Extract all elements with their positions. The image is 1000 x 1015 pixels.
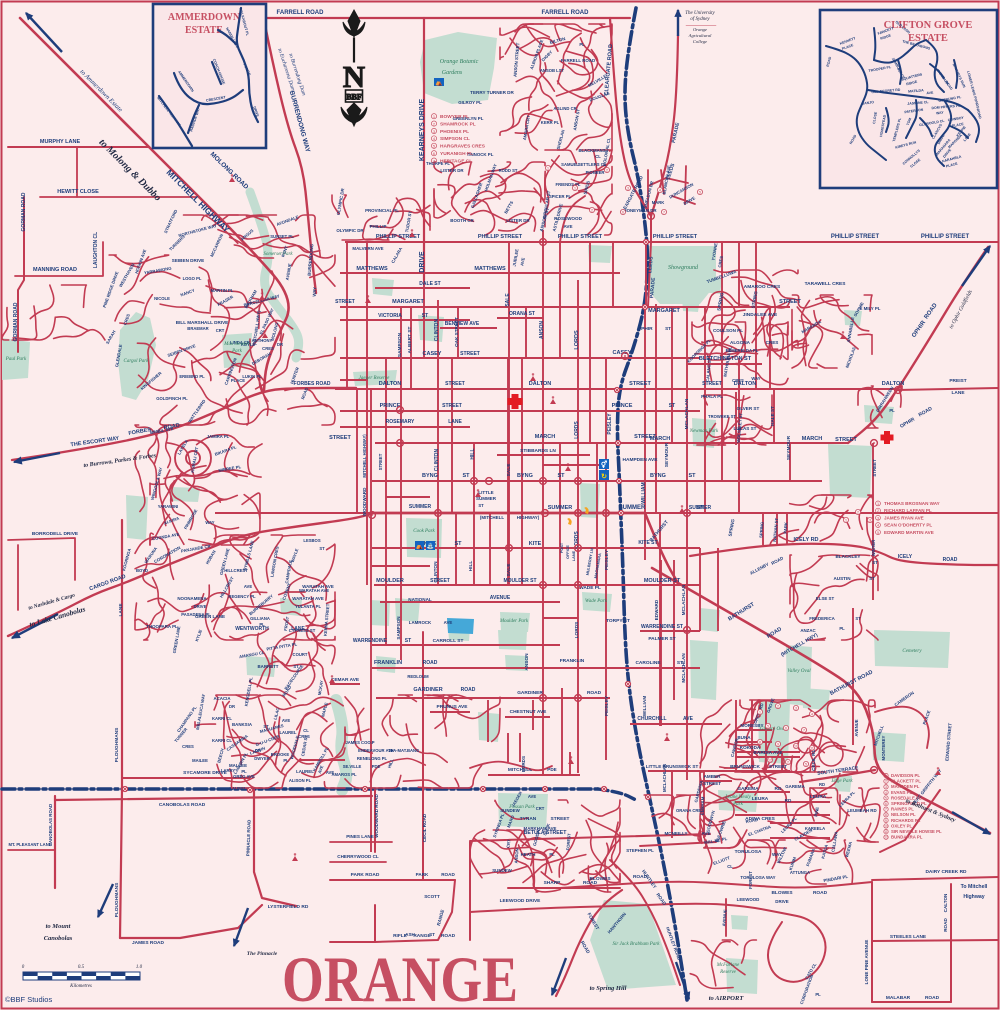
svg-text:YULANTA PL: YULANTA PL xyxy=(295,604,321,609)
svg-text:↻: ↻ xyxy=(601,474,607,481)
svg-text:FARRELL ROAD: FARRELL ROAD xyxy=(561,58,595,63)
svg-text:STREET: STREET xyxy=(378,453,383,470)
svg-text:SHAMROCK PL: SHAMROCK PL xyxy=(440,121,476,127)
svg-text:6: 6 xyxy=(785,727,787,731)
svg-text:NELSON PL: NELSON PL xyxy=(891,812,916,817)
svg-text:MOULDER ST: MOULDER ST xyxy=(644,578,681,584)
svg-text:LISTER DR: LISTER DR xyxy=(506,218,530,223)
svg-text:PLOUGHMANS: PLOUGHMANS xyxy=(114,882,120,917)
svg-text:Park: Park xyxy=(231,349,243,354)
svg-text:RD: RD xyxy=(785,798,792,803)
svg-text:WARATAH AVE: WARATAH AVE xyxy=(292,596,324,601)
svg-text:HERITAGE CL: HERITAGE CL xyxy=(440,158,472,164)
svg-text:JAMES RYAN AVE: JAMES RYAN AVE xyxy=(884,515,924,520)
svg-text:CRES: CRES xyxy=(182,744,194,749)
svg-text:LAUREL: LAUREL xyxy=(280,730,297,735)
svg-text:1.0: 1.0 xyxy=(136,965,143,970)
svg-text:Paul Park: Paul Park xyxy=(5,357,27,362)
svg-text:BROOKE: BROOKE xyxy=(271,752,290,757)
svg-text:FARRELL ROAD: FARRELL ROAD xyxy=(542,10,590,16)
svg-text:SUMMER: SUMMER xyxy=(689,505,712,511)
svg-text:TORULOSA: TORULOSA xyxy=(735,849,762,855)
svg-text:ROSEMARY: ROSEMARY xyxy=(386,419,415,425)
svg-text:1: 1 xyxy=(759,711,761,715)
svg-text:DALTON: DALTON xyxy=(529,381,551,387)
svg-text:Valley Oval: Valley Oval xyxy=(787,669,811,674)
svg-text:LEURA: LEURA xyxy=(752,796,769,802)
svg-text:Kilometres: Kilometres xyxy=(69,984,92,989)
svg-text:STEPHEN PL: STEPHEN PL xyxy=(626,848,654,853)
svg-text:Leane Healy: Leane Healy xyxy=(724,795,751,800)
svg-text:REGENCY PL: REGENCY PL xyxy=(228,594,256,599)
svg-text:DALTON: DALTON xyxy=(882,381,904,387)
svg-text:ROAD: ROAD xyxy=(441,872,455,877)
svg-text:LANE: LANE xyxy=(118,603,124,617)
svg-text:BLOWES: BLOWES xyxy=(771,890,793,896)
svg-text:ICELY: ICELY xyxy=(898,554,913,560)
svg-text:LANE: LANE xyxy=(572,550,576,561)
svg-text:BLACKMANS: BLACKMANS xyxy=(579,148,606,153)
svg-text:CHURCHILL: CHURCHILL xyxy=(637,716,666,722)
svg-text:SAMUEL: SAMUEL xyxy=(561,162,579,167)
svg-text:Reserve: Reserve xyxy=(719,970,737,975)
svg-text:PINES LANE: PINES LANE xyxy=(346,834,374,839)
svg-text:OFFICE: OFFICE xyxy=(566,545,570,559)
svg-text:SHARP: SHARP xyxy=(544,880,562,886)
svg-text:AMAROO CRES: AMAROO CRES xyxy=(744,284,781,290)
svg-text:ANZAC: ANZAC xyxy=(800,628,816,633)
svg-text:BRUNSWICK: BRUNSWICK xyxy=(730,764,760,770)
svg-text:12: 12 xyxy=(884,836,888,840)
svg-text:CL: CL xyxy=(727,864,733,869)
svg-text:PEISLEY: PEISLEY xyxy=(604,549,610,570)
svg-text:STEELES LANE: STEELES LANE xyxy=(890,934,927,940)
svg-text:LAMROCK: LAMROCK xyxy=(409,620,432,625)
svg-text:COURT: COURT xyxy=(293,652,308,657)
svg-text:6: 6 xyxy=(622,211,624,215)
svg-text:CALTON: CALTON xyxy=(943,893,948,912)
svg-text:4: 4 xyxy=(877,524,879,528)
svg-text:KITE ST: KITE ST xyxy=(638,540,657,546)
svg-text:RD: RD xyxy=(775,786,782,792)
svg-text:MARCH: MARCH xyxy=(650,436,670,442)
svg-text:3: 3 xyxy=(795,707,797,711)
svg-text:CL: CL xyxy=(595,154,601,159)
svg-text:SEYMOUR: SEYMOUR xyxy=(786,435,792,460)
svg-text:JAMIRA PL: JAMIRA PL xyxy=(207,434,230,439)
svg-text:KARRI CL: KARRI CL xyxy=(212,716,232,721)
svg-text:LEEWOOD DRIVE: LEEWOOD DRIVE xyxy=(500,898,542,904)
svg-text:WARRENDINE ST: WARRENDINE ST xyxy=(641,624,683,630)
svg-text:To Mitchell: To Mitchell xyxy=(961,884,988,890)
svg-text:PDE: PDE xyxy=(372,764,381,769)
svg-text:2: 2 xyxy=(787,761,789,765)
svg-text:THOMAS BROSNAN WAY: THOMAS BROSNAN WAY xyxy=(884,501,940,506)
svg-text:PALMER ST: PALMER ST xyxy=(648,636,675,642)
svg-text:WADE PL: WADE PL xyxy=(579,585,601,591)
svg-text:BRAEMAR: BRAEMAR xyxy=(187,326,208,331)
svg-text:NATIONAL: NATIONAL xyxy=(408,597,432,602)
svg-text:BANKSIA: BANKSIA xyxy=(232,722,253,727)
svg-text:PARK: PARK xyxy=(783,522,789,534)
svg-text:ROAD: ROAD xyxy=(587,690,602,696)
svg-text:12: 12 xyxy=(768,759,772,763)
svg-text:7: 7 xyxy=(803,729,805,733)
svg-text:GARDINER: GARDINER xyxy=(413,687,442,693)
svg-text:PL: PL xyxy=(889,408,895,413)
svg-text:GREG AVE: GREG AVE xyxy=(233,774,255,779)
svg-text:5: 5 xyxy=(767,725,769,729)
svg-text:CLINTON: CLINTON xyxy=(434,319,440,342)
svg-text:REDLOUM: REDLOUM xyxy=(407,674,429,679)
svg-text:DRIVE: DRIVE xyxy=(419,251,426,273)
svg-text:AMAROS PL: AMAROS PL xyxy=(331,772,357,777)
svg-text:CECIL ROAD: CECIL ROAD xyxy=(422,813,427,842)
svg-text:PIONEER: PIONEER xyxy=(586,170,605,175)
svg-text:MARCH: MARCH xyxy=(535,434,555,440)
svg-text:Highway: Highway xyxy=(963,894,984,900)
svg-text:PHILLIP STREET: PHILLIP STREET xyxy=(921,234,970,240)
svg-text:TYNAN: TYNAN xyxy=(520,816,537,822)
svg-text:MT. PLEASANT LANE: MT. PLEASANT LANE xyxy=(8,842,51,847)
svg-text:Gardens: Gardens xyxy=(442,70,463,76)
svg-text:WILLIAM: WILLIAM xyxy=(642,696,648,717)
svg-text:BOWYER PL: BOWYER PL xyxy=(440,114,469,120)
svg-text:ASH: ASH xyxy=(405,932,415,937)
svg-text:Agricultural: Agricultural xyxy=(688,33,712,38)
svg-text:11: 11 xyxy=(810,747,814,751)
svg-text:2: 2 xyxy=(877,509,879,513)
svg-text:BOOTH CR: BOOTH CR xyxy=(450,218,474,223)
svg-text:CRES: CRES xyxy=(298,734,310,739)
svg-text:LORDS: LORDS xyxy=(521,756,526,772)
svg-text:DAVIDSON PL: DAVIDSON PL xyxy=(891,773,920,778)
svg-text:COULSON PL: COULSON PL xyxy=(713,328,743,333)
svg-text:OXLEY PL: OXLEY PL xyxy=(891,823,913,828)
svg-text:LORDS: LORDS xyxy=(574,621,580,639)
svg-text:MARSDEN PL: MARSDEN PL xyxy=(891,784,920,789)
svg-text:BYNG: BYNG xyxy=(422,473,438,479)
svg-text:1: 1 xyxy=(845,519,847,523)
svg-text:MURPHY LANE: MURPHY LANE xyxy=(40,139,81,145)
svg-text:WOODWARD ROAD: WOODWARD ROAD xyxy=(374,794,379,838)
svg-text:FREDERICA: FREDERICA xyxy=(809,616,835,621)
svg-text:The University: The University xyxy=(685,11,715,16)
svg-text:to Mount: to Mount xyxy=(46,923,71,930)
svg-text:PL: PL xyxy=(259,622,265,627)
svg-text:ST: ST xyxy=(454,541,462,547)
svg-text:SUMMER: SUMMER xyxy=(548,505,572,511)
svg-text:GILLIANA: GILLIANA xyxy=(250,616,270,621)
svg-text:DWYER: DWYER xyxy=(254,756,270,761)
svg-text:POST: POST xyxy=(560,542,564,553)
svg-text:RAINES PL: RAINES PL xyxy=(891,807,914,812)
svg-text:MOULDER: MOULDER xyxy=(376,578,404,584)
svg-text:9: 9 xyxy=(777,743,779,747)
svg-text:CARROLL ST: CARROLL ST xyxy=(433,638,464,644)
svg-text:Edge Park: Edge Park xyxy=(830,779,853,784)
svg-text:CRT: CRT xyxy=(216,328,225,333)
svg-text:Cargol Park: Cargol Park xyxy=(124,359,150,364)
svg-text:WAY: WAY xyxy=(751,376,760,381)
svg-text:3: 3 xyxy=(627,187,629,191)
svg-text:AGLIND CR: AGLIND CR xyxy=(553,106,576,111)
svg-text:5: 5 xyxy=(699,191,701,195)
svg-text:ANSON: ANSON xyxy=(539,321,545,339)
svg-text:MALABAR: MALABAR xyxy=(886,995,911,1001)
svg-text:AVE: AVE xyxy=(244,584,253,589)
svg-text:PEISLEY: PEISLEY xyxy=(604,695,610,716)
svg-text:GARDINER: GARDINER xyxy=(517,690,543,696)
svg-text:GORMAN ROAD: GORMAN ROAD xyxy=(21,192,27,231)
svg-text:SPICER PL: SPICER PL xyxy=(549,194,572,199)
svg-text:YURANIGH PL: YURANIGH PL xyxy=(440,151,473,157)
svg-text:LYSTERFIELD RD: LYSTERFIELD RD xyxy=(268,904,309,910)
svg-text:MOULDER ST: MOULDER ST xyxy=(503,578,536,584)
svg-text:4: 4 xyxy=(659,189,661,193)
svg-text:ST: ST xyxy=(478,503,484,508)
svg-text:STREET: STREET xyxy=(335,299,355,305)
svg-text:ROAD: ROAD xyxy=(461,687,476,693)
svg-text:JINDALEE AVE: JINDALEE AVE xyxy=(743,312,778,318)
svg-text:ALBERT ST: ALBERT ST xyxy=(407,326,413,353)
svg-text:PHILLIP STREET: PHILLIP STREET xyxy=(831,234,880,240)
svg-text:WAY: WAY xyxy=(312,287,318,297)
svg-text:ATTUNGA: ATTUNGA xyxy=(790,870,810,875)
svg-text:HALE ST: HALE ST xyxy=(770,406,775,426)
svg-text:AMMERDOWN: AMMERDOWN xyxy=(168,12,241,23)
svg-text:RD: RD xyxy=(819,782,825,787)
svg-text:STREET: STREET xyxy=(551,816,570,822)
svg-text:ORANA CRES: ORANA CRES xyxy=(676,808,704,813)
svg-text:DRIVE: DRIVE xyxy=(194,604,207,609)
svg-text:WILLIAM: WILLIAM xyxy=(641,482,647,503)
svg-text:MCLACHLAN: MCLACHLAN xyxy=(662,764,667,792)
svg-text:MCLACHLAN: MCLACHLAN xyxy=(684,398,690,429)
svg-text:TARAWELL CRES: TARAWELL CRES xyxy=(805,281,847,287)
svg-text:N: N xyxy=(343,59,365,94)
svg-text:CLINTON: CLINTON xyxy=(434,449,440,472)
svg-text:TORPY ST: TORPY ST xyxy=(606,618,630,624)
svg-text:7: 7 xyxy=(663,211,665,215)
svg-text:MATTHEWS: MATTHEWS xyxy=(356,266,388,272)
svg-text:⛺: ⛺ xyxy=(416,544,424,550)
svg-text:SIR NEVILLE HOWSE PL: SIR NEVILLE HOWSE PL xyxy=(891,829,942,834)
svg-text:CHERRYWOOD CL: CHERRYWOOD CL xyxy=(337,854,379,859)
svg-text:Orange Botanic: Orange Botanic xyxy=(440,59,479,65)
svg-text:Canobolas: Canobolas xyxy=(44,935,73,942)
svg-text:ACACIA: ACACIA xyxy=(213,696,231,701)
svg-text:FARRELL ROAD: FARRELL ROAD xyxy=(277,10,325,16)
svg-text:to AIRPORT: to AIRPORT xyxy=(709,995,745,1002)
svg-text:FORBES ROAD: FORBES ROAD xyxy=(294,381,331,387)
svg-text:Jaeger Reserve: Jaeger Reserve xyxy=(359,376,390,381)
svg-text:STIBBARDS LN: STIBBARDS LN xyxy=(520,448,556,454)
svg-text:BYNG: BYNG xyxy=(517,473,533,479)
svg-text:SCOTT: SCOTT xyxy=(424,894,440,899)
svg-text:MARTIN PL: MARTIN PL xyxy=(211,288,234,293)
svg-text:BUNA: BUNA xyxy=(737,735,751,740)
svg-text:The Pinnacle: The Pinnacle xyxy=(247,951,278,957)
svg-text:CHESTNUT AVE: CHESTNUT AVE xyxy=(510,709,548,715)
svg-text:WAY: WAY xyxy=(205,520,214,525)
svg-text:PL: PL xyxy=(549,852,555,857)
svg-text:PL: PL xyxy=(839,626,845,631)
svg-text:10: 10 xyxy=(794,745,798,749)
svg-text:RENELONG PL: RENELONG PL xyxy=(357,756,388,761)
svg-text:OAK STREET: OAK STREET xyxy=(454,317,459,347)
svg-text:DALE ST: DALE ST xyxy=(419,281,440,287)
svg-text:N-A-MAT.BANG: N-A-MAT.BANG xyxy=(389,748,420,753)
svg-text:8: 8 xyxy=(759,741,761,745)
svg-text:EDWARD MARTIN AVE: EDWARD MARTIN AVE xyxy=(884,530,934,535)
svg-text:PL: PL xyxy=(815,992,821,997)
svg-text:ROAD: ROAD xyxy=(441,933,456,939)
svg-text:EVANS PL: EVANS PL xyxy=(891,790,913,795)
svg-text:WOODWARD: WOODWARD xyxy=(362,487,367,517)
svg-text:3: 3 xyxy=(869,519,871,523)
svg-text:⛲: ⛲ xyxy=(427,542,434,550)
svg-text:MARGARET: MARGARET xyxy=(648,308,680,314)
svg-text:STREET: STREET xyxy=(835,437,857,443)
svg-text:KEARNEYS DRIVE: KEARNEYS DRIVE xyxy=(419,99,426,162)
svg-text:10: 10 xyxy=(884,824,888,828)
svg-text:HEWITT CLOSE: HEWITT CLOSE xyxy=(57,189,99,195)
svg-text:AVE: AVE xyxy=(683,716,694,722)
svg-text:MCLACHLAN: MCLACHLAN xyxy=(681,653,686,683)
svg-text:CL: CL xyxy=(303,728,309,733)
svg-text:PHALA PL: PHALA PL xyxy=(701,394,723,399)
svg-text:JAMES ROAD: JAMES ROAD xyxy=(132,940,165,946)
svg-text:2: 2 xyxy=(591,209,593,213)
svg-text:DR: DR xyxy=(229,704,235,709)
svg-text:BBF: BBF xyxy=(346,93,362,102)
svg-text:CAROLINE: CAROLINE xyxy=(635,660,661,666)
svg-text:NICOLE: NICOLE xyxy=(154,296,170,301)
svg-text:LUKIN PL: LUKIN PL xyxy=(242,374,262,379)
svg-text:OLVER ST: OLVER ST xyxy=(737,406,760,411)
svg-text:ERIEBND PL: ERIEBND PL xyxy=(179,374,205,379)
svg-text:TERRY TURNER DR: TERRY TURNER DR xyxy=(470,90,514,95)
svg-text:MANNING ROAD: MANNING ROAD xyxy=(33,267,77,273)
svg-text:STREET: STREET xyxy=(445,381,465,387)
svg-text:McFarlane: McFarlane xyxy=(716,963,740,968)
svg-text:MCNEILLY: MCNEILLY xyxy=(664,831,687,836)
svg-text:SIMPSON CL: SIMPSON CL xyxy=(440,136,470,142)
svg-text:CRES: CRES xyxy=(732,378,744,383)
svg-text:ST: ST xyxy=(429,932,435,937)
svg-text:LISTER DR: LISTER DR xyxy=(440,168,464,173)
svg-text:LONE PINE AVENUE: LONE PINE AVENUE xyxy=(864,940,869,985)
svg-text:Fossan Park: Fossan Park xyxy=(508,805,535,810)
svg-text:ROAD: ROAD xyxy=(583,880,598,886)
svg-text:ALISON PL: ALISON PL xyxy=(289,778,312,783)
svg-text:MITCHELL HIGHWAY): MITCHELL HIGHWAY) xyxy=(362,434,367,478)
svg-text:1: 1 xyxy=(574,187,576,191)
svg-text:LORDS: LORDS xyxy=(574,421,580,439)
svg-text:LANE: LANE xyxy=(448,419,462,425)
svg-text:YARAWINI: YARAWINI xyxy=(158,504,179,509)
svg-text:MCLACHLAN: MCLACHLAN xyxy=(681,584,687,615)
svg-text:PL: PL xyxy=(579,42,585,47)
svg-text:KITE: KITE xyxy=(529,541,542,547)
svg-text:ORANGE: ORANGE xyxy=(282,944,518,1010)
svg-text:STREET: STREET xyxy=(329,435,351,441)
svg-text:Cook Park: Cook Park xyxy=(413,529,435,534)
svg-text:LEUMEAH RD: LEUMEAH RD xyxy=(847,808,876,813)
svg-text:2: 2 xyxy=(777,705,779,709)
svg-text:4: 4 xyxy=(885,791,887,795)
svg-text:ST: ST xyxy=(462,473,470,479)
svg-text:DALTON: DALTON xyxy=(379,381,401,387)
svg-text:©BBF Studios: ©BBF Studios xyxy=(5,995,52,1004)
svg-text:ST: ST xyxy=(669,403,675,409)
svg-text:Orange: Orange xyxy=(693,27,707,32)
svg-text:PHILLIP STREET: PHILLIP STREET xyxy=(478,234,523,240)
svg-text:SEAN O'DOHERTY PL: SEAN O'DOHERTY PL xyxy=(884,523,932,528)
svg-text:DAIRY CREEK RD: DAIRY CREEK RD xyxy=(925,869,967,875)
svg-text:KOKODA: KOKODA xyxy=(740,745,761,750)
svg-text:SAMPSON: SAMPSON xyxy=(396,616,401,640)
svg-text:DRIVE: DRIVE xyxy=(775,899,788,904)
svg-text:AVE: AVE xyxy=(528,794,537,799)
svg-text:MARGARET: MARGARET xyxy=(392,299,424,305)
svg-text:9: 9 xyxy=(885,819,887,823)
svg-text:LESBOS: LESBOS xyxy=(303,538,320,543)
svg-text:AVENUE: AVENUE xyxy=(854,719,859,736)
svg-text:ST: ST xyxy=(557,473,565,479)
svg-text:LITTLE BRUNSWICK ST: LITTLE BRUNSWICK ST xyxy=(646,764,699,769)
svg-text:PROVINCIAL PL: PROVINCIAL PL xyxy=(365,208,399,213)
svg-text:4: 4 xyxy=(811,713,813,717)
svg-text:STREET: STREET xyxy=(872,459,877,477)
svg-text:ANSON: ANSON xyxy=(524,653,530,671)
svg-text:CANOBOLAS ROAD: CANOBOLAS ROAD xyxy=(159,802,206,808)
svg-text:2: 2 xyxy=(885,780,887,784)
svg-text:1: 1 xyxy=(885,774,887,778)
svg-text:WARATAH AVE: WARATAH AVE xyxy=(299,588,329,593)
svg-text:PREIST: PREIST xyxy=(949,378,966,384)
svg-text:NOONAMENA: NOONAMENA xyxy=(177,596,207,601)
svg-text:OPHIR: OPHIR xyxy=(637,326,653,332)
svg-text:Max Stewart: Max Stewart xyxy=(223,342,250,347)
svg-text:MALVERN AVE: MALVERN AVE xyxy=(352,246,383,251)
svg-text:AUSTIN: AUSTIN xyxy=(833,576,851,581)
svg-text:CYPRESS ST: CYPRESS ST xyxy=(289,628,316,633)
svg-text:LEEWOOD: LEEWOOD xyxy=(737,897,760,902)
svg-text:BLACKLEY: BLACKLEY xyxy=(835,554,860,559)
svg-text:GOLDFINCH PL: GOLDFINCH PL xyxy=(156,396,188,401)
svg-text:RICHARD LAFFAN PL: RICHARD LAFFAN PL xyxy=(884,508,932,513)
svg-text:WINTER: WINTER xyxy=(871,540,876,557)
svg-text:College: College xyxy=(693,39,707,44)
svg-text:KERR PL: KERR PL xyxy=(541,120,560,125)
svg-text:Newman Park: Newman Park xyxy=(689,429,719,434)
svg-text:PRINCE: PRINCE xyxy=(612,403,633,409)
svg-text:ST: ST xyxy=(869,576,875,581)
svg-text:PDE: PDE xyxy=(547,767,556,772)
svg-text:SUNDEW: SUNDEW xyxy=(492,868,512,873)
svg-text:PRUNUS AVE: PRUNUS AVE xyxy=(437,704,469,710)
svg-text:PARK ROAD: PARK ROAD xyxy=(351,872,380,878)
svg-text:5: 5 xyxy=(805,763,807,767)
svg-text:Cemetery: Cemetery xyxy=(902,649,922,654)
svg-text:STREET: STREET xyxy=(442,403,462,409)
svg-text:LAUREL: LAUREL xyxy=(230,786,247,791)
svg-text:Sir Jack Brabham Park: Sir Jack Brabham Park xyxy=(612,942,660,947)
svg-text:WARRENDINE: WARRENDINE xyxy=(353,638,388,644)
svg-text:LITTLE: LITTLE xyxy=(478,490,493,495)
